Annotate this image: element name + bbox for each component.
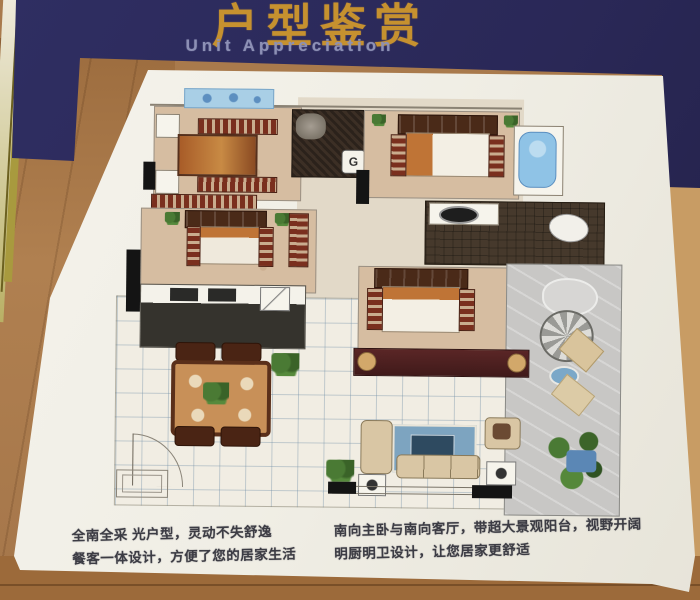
blue-planter-pot <box>566 450 596 472</box>
counter-appliance <box>170 288 198 301</box>
bedside-slats <box>258 227 273 267</box>
plant-icon <box>271 353 299 376</box>
dining-chair <box>220 426 260 446</box>
bedside-slats <box>390 134 406 176</box>
counter-appliance <box>208 288 236 301</box>
plant-icon <box>372 114 386 126</box>
wardrobe-slats <box>198 118 278 135</box>
banner-subtitle-en: Unit Appreciation <box>70 36 510 56</box>
bed-orange <box>177 134 257 177</box>
wall-segment <box>143 162 155 190</box>
bed-white <box>382 286 460 333</box>
wall-segment <box>356 170 369 204</box>
wardrobe-slats <box>288 213 309 267</box>
bed-white <box>198 226 260 265</box>
basin-icon <box>439 206 479 224</box>
floor-seam-line <box>0 584 700 586</box>
range-hood <box>296 113 326 139</box>
photo-of-floorplan-display-board: 户型鉴赏 Unit Appreciation G <box>0 0 700 600</box>
nightstand <box>156 114 180 138</box>
bedside-slats <box>488 135 504 177</box>
armchair-cushion <box>493 423 511 439</box>
bathtub-blue <box>518 132 557 188</box>
table-centerpiece-plant <box>203 382 229 404</box>
wall-segment <box>126 249 141 311</box>
wall-segment <box>328 482 356 494</box>
bedside-slats <box>367 288 383 330</box>
nightstand <box>155 170 179 194</box>
caption-right: 南向主卧与南向客厅，带超大景观阳台，视野开阔 明厨明卫设计，让您居家更舒适 <box>334 513 643 566</box>
wall-segment <box>472 485 512 498</box>
dining-chair <box>174 426 214 446</box>
tv-console <box>353 348 529 378</box>
caption-left: 全南全采 光户型，灵动不失舒逸 餐客一体设计，方便了您的居家生活 <box>72 519 297 570</box>
bedside-slats <box>186 226 200 266</box>
entry-step-inner <box>122 474 162 492</box>
plant-icon <box>326 460 354 482</box>
dining-chair <box>175 342 215 361</box>
blue-planter-bay <box>184 88 274 109</box>
floor-plan: G <box>110 83 626 520</box>
sofa-main <box>396 454 480 479</box>
console-lamp <box>357 352 376 371</box>
plant-icon <box>275 213 290 226</box>
sink-icon <box>260 287 290 311</box>
bed-white <box>405 132 489 177</box>
plant-icon <box>165 212 180 225</box>
bedside-slats <box>459 289 475 331</box>
console-lamp <box>507 353 526 372</box>
bench-slats <box>197 176 277 193</box>
side-table-lamp <box>486 461 516 485</box>
dining-chair <box>221 342 261 361</box>
sofa-side <box>360 420 393 474</box>
